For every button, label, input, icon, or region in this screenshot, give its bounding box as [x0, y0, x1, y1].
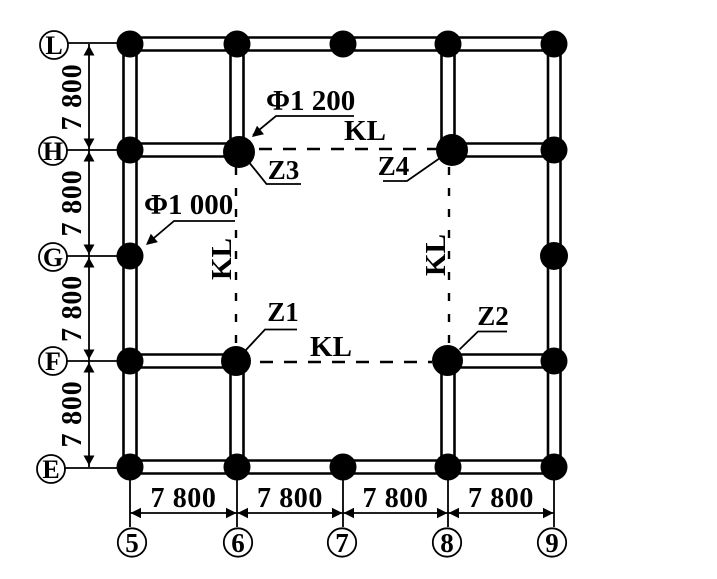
svg-text:G: G [43, 243, 63, 272]
svg-text:KL: KL [420, 234, 452, 276]
svg-text:Z2: Z2 [477, 301, 509, 331]
svg-text:7 800: 7 800 [57, 381, 88, 448]
svg-text:KL: KL [206, 238, 238, 280]
svg-text:F: F [45, 347, 61, 376]
svg-text:7: 7 [335, 528, 349, 558]
svg-text:KL: KL [310, 331, 352, 363]
svg-text:Z4: Z4 [378, 151, 410, 181]
svg-text:Z1: Z1 [267, 297, 299, 327]
svg-text:KL: KL [344, 115, 386, 147]
svg-text:5: 5 [125, 528, 139, 558]
svg-text:Φ1 200: Φ1 200 [266, 85, 355, 117]
svg-text:6: 6 [231, 528, 245, 558]
svg-text:7 800: 7 800 [257, 483, 323, 514]
svg-text:Φ1 000: Φ1 000 [144, 189, 233, 221]
svg-text:Z3: Z3 [268, 155, 300, 185]
svg-text:7 800: 7 800 [468, 483, 534, 514]
svg-text:E: E [42, 455, 59, 484]
svg-text:8: 8 [440, 528, 454, 558]
svg-text:7 800: 7 800 [151, 483, 217, 514]
svg-text:7 800: 7 800 [57, 170, 88, 237]
svg-text:7 800: 7 800 [363, 483, 429, 514]
svg-text:7 800: 7 800 [57, 64, 88, 131]
svg-text:7 800: 7 800 [57, 275, 88, 342]
svg-text:H: H [43, 137, 63, 166]
svg-text:L: L [45, 31, 62, 60]
svg-text:9: 9 [545, 528, 559, 558]
